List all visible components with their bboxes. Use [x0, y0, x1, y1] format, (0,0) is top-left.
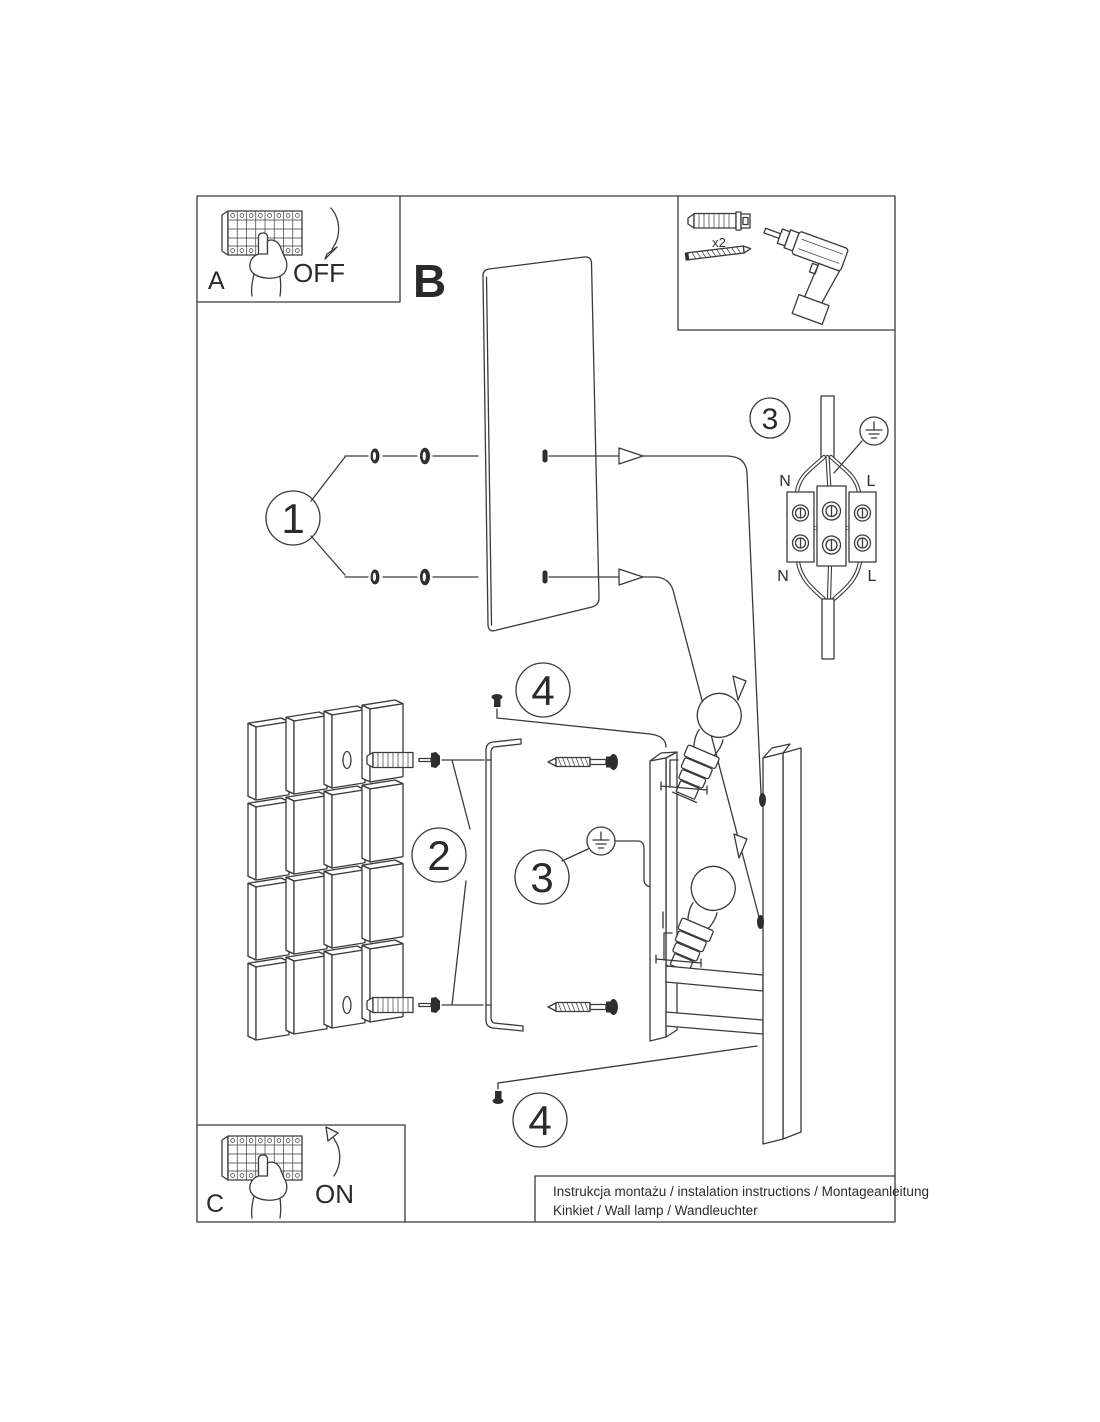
step3-number: 3 [762, 403, 779, 436]
panel-c-label: C [206, 1190, 224, 1218]
terminal-label-n-bottom: N [777, 568, 789, 585]
panel-c-state: ON [315, 1179, 354, 1209]
ground-symbol-icon [860, 417, 888, 445]
front-panel [483, 257, 599, 631]
step4-top-group [492, 663, 667, 747]
caption: Instrukcja montażu / instalation instruc… [553, 1184, 929, 1218]
panel-a-label: A [208, 267, 225, 295]
step2-number: 2 [427, 832, 450, 879]
arrow-right-icon [619, 569, 643, 585]
fixing-screw-icon [493, 1098, 504, 1104]
arrow-down-icon [325, 208, 339, 259]
ground-symbol-icon [587, 827, 615, 855]
section-b-label: B [413, 255, 446, 307]
tiled-wall [248, 699, 403, 1042]
routing-line-top [643, 456, 761, 794]
lamp-frame-bar [757, 744, 801, 1144]
arrow-up-icon [326, 1127, 340, 1176]
arrow-down-icon [733, 676, 746, 700]
cable-top [821, 396, 834, 458]
terminal-label-n-top: N [779, 473, 791, 490]
step4-number: 4 [528, 1097, 551, 1144]
step1-number: 1 [281, 495, 304, 542]
panel-c: C ON [206, 1127, 354, 1218]
cable-bottom [822, 599, 834, 659]
step4-number: 4 [531, 667, 554, 714]
lamp-bottom-rails [666, 966, 763, 1034]
mounting-screw-icon [548, 999, 618, 1015]
arrow-down-icon [734, 834, 747, 858]
grommet-icon [371, 448, 431, 586]
panel-a-state: OFF [293, 258, 345, 288]
wall-plug-icon [688, 212, 750, 230]
drill-icon [741, 220, 849, 325]
peg-icon [757, 915, 764, 929]
mounting-screw-icon [548, 754, 618, 770]
panel-a: A OFF [208, 208, 345, 296]
lamp-assembly [650, 687, 801, 1144]
tools-box: x2 [685, 212, 850, 324]
lamp-back-plate [650, 752, 677, 1041]
terminal-label-l-top: L [867, 473, 876, 490]
instruction-diagram: A OFF x2 B [0, 0, 1100, 1422]
peg-icon [759, 793, 766, 807]
caption-line2: Kinkiet / Wall lamp / Wandleuchter [553, 1203, 758, 1218]
arrow-right-icon [619, 448, 643, 464]
terminal-label-l-bottom: L [868, 568, 877, 585]
step3-number: 3 [530, 854, 553, 901]
caption-line1: Instrukcja montażu / instalation instruc… [553, 1184, 929, 1199]
instruction-sheet: A OFF x2 B [0, 0, 1100, 1422]
